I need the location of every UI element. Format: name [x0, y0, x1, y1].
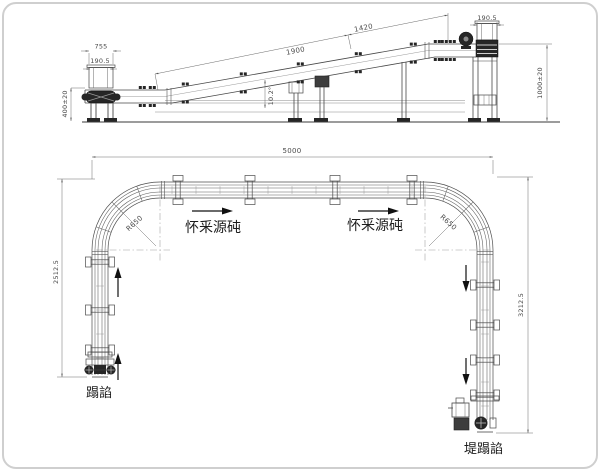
technical-drawing: 755 190.5 400±20 1900 1420 10.2° — [0, 0, 600, 473]
roller-mark — [445, 40, 448, 43]
roller-mark — [153, 86, 156, 89]
roller-mark — [441, 58, 444, 61]
roller-mark — [438, 58, 441, 61]
roller-mark — [182, 83, 185, 86]
roller-mark — [355, 52, 358, 55]
dim-text: 190.5 — [477, 14, 497, 22]
roller-mark — [445, 58, 448, 61]
dim-text: 755 — [94, 43, 107, 51]
roller-mark — [301, 62, 304, 65]
roller-mark — [182, 101, 185, 104]
roller-mark — [434, 40, 437, 43]
roller-mark — [240, 72, 243, 75]
roller-mark — [414, 43, 417, 46]
roller-mark — [186, 83, 189, 86]
roller-mark — [434, 58, 437, 61]
foot-pad — [104, 118, 117, 122]
roller-mark — [143, 86, 146, 89]
flow-label-left: 怀釆源砘 — [185, 220, 241, 236]
dim-text: 10.2° — [267, 87, 275, 106]
drive-motor — [459, 32, 473, 49]
roller-mark — [139, 104, 142, 107]
roller-mark — [453, 58, 456, 61]
roller-mark — [410, 61, 413, 64]
roller-mark — [139, 86, 142, 89]
infeed-label: 蹋諂 — [86, 385, 112, 401]
roller-mark — [438, 40, 441, 43]
gearbox — [454, 418, 469, 430]
dim-text: 190.5 — [90, 57, 110, 65]
dim-text: 5000 — [282, 147, 301, 155]
dim-text: 3212.5 — [517, 293, 525, 317]
roller-mark — [449, 58, 452, 61]
roller-mark — [301, 80, 304, 83]
roller-mark — [453, 40, 456, 43]
roller-mark — [414, 61, 417, 64]
outfeed-label: 堤蹋諂 — [464, 441, 503, 457]
roller-mark — [449, 40, 452, 43]
roller-mark — [149, 86, 152, 89]
roller-mark — [240, 90, 243, 93]
roller-mark — [441, 40, 444, 43]
tail-pulley — [82, 91, 121, 103]
roller-mark — [359, 70, 362, 73]
roller-mark — [359, 52, 362, 55]
dim-text: 2512.5 — [52, 260, 60, 284]
roller-mark — [410, 43, 413, 46]
roller-mark — [153, 104, 156, 107]
roller-mark — [297, 80, 300, 83]
roller-mark — [244, 90, 247, 93]
roller-mark — [355, 70, 358, 73]
roller-mark — [186, 101, 189, 104]
roller-mark — [143, 104, 146, 107]
flow-label-right: 怀釆源砘 — [347, 218, 403, 234]
roller-mark — [244, 72, 247, 75]
dim-text: 1000±20 — [536, 67, 544, 99]
roller-mark — [149, 104, 152, 107]
roller-mark — [297, 62, 300, 65]
dim-text: 400±20 — [61, 90, 69, 117]
head-pulley — [476, 40, 498, 57]
foot-pad — [87, 118, 100, 122]
